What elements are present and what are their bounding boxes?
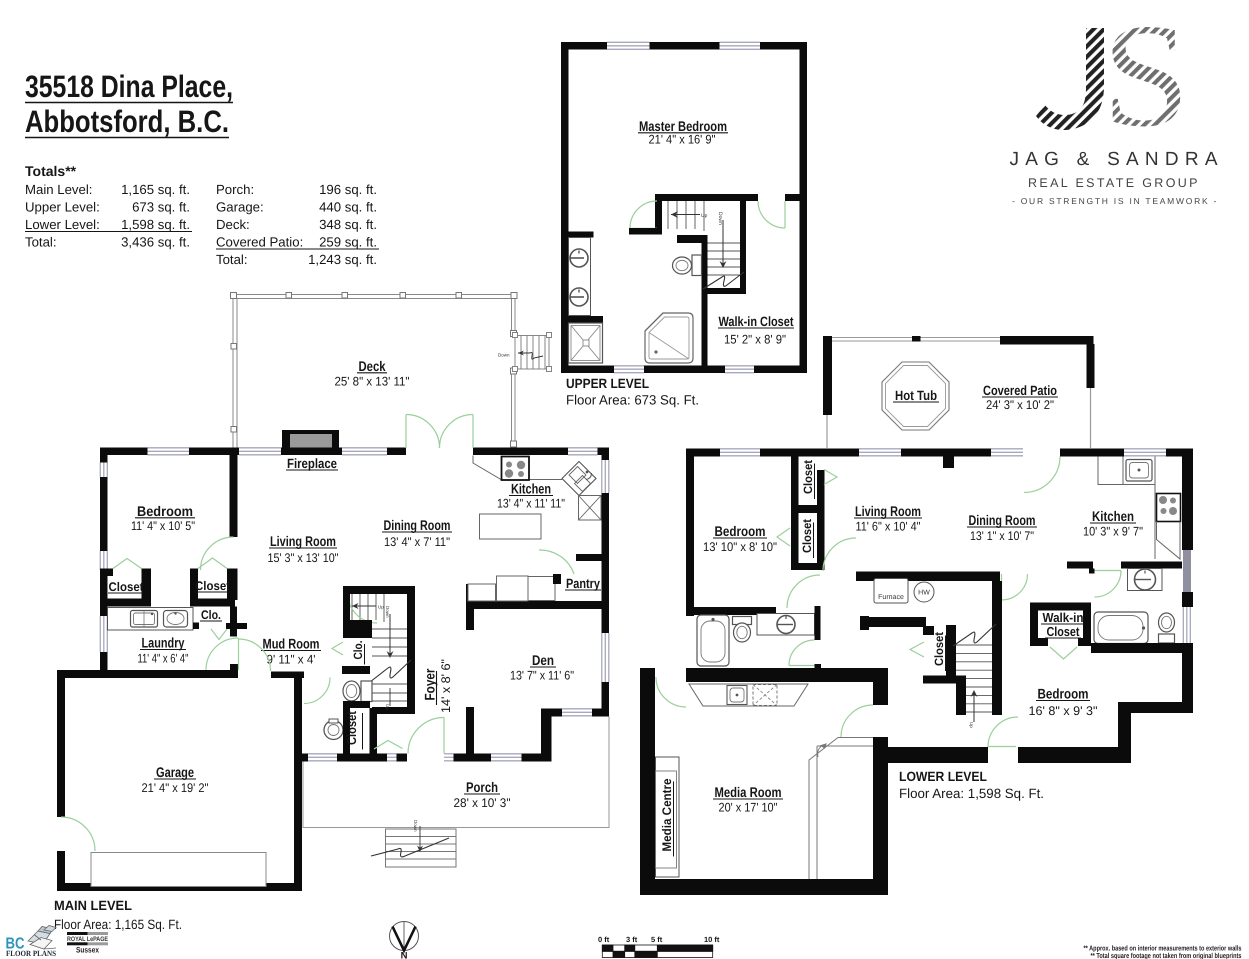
svg-text:Clo.: Clo. (201, 608, 221, 622)
svg-text:REAL ESTATE GROUP: REAL ESTATE GROUP (1028, 176, 1200, 190)
svg-text:10 ft: 10 ft (704, 935, 720, 944)
svg-text:Living Room: Living Room (855, 503, 921, 519)
svg-text:FLOOR PLANS: FLOOR PLANS (6, 949, 56, 958)
svg-text:Media Centre: Media Centre (660, 778, 674, 851)
svg-text:673 sq. ft.: 673 sq. ft. (132, 200, 190, 215)
svg-text:Porch:: Porch: (216, 182, 254, 197)
svg-text:HW: HW (918, 590, 930, 597)
svg-text:Down: Down (385, 606, 390, 618)
svg-text:Deck: Deck (359, 358, 386, 374)
svg-text:Upper Level:: Upper Level: (25, 200, 100, 215)
svg-text:Main Level:: Main Level: (25, 182, 92, 197)
svg-text:11' 6" x 10' 4": 11' 6" x 10' 4" (856, 520, 921, 534)
svg-text:Closet: Closet (932, 632, 946, 666)
svg-text:14' x 8' 6": 14' x 8' 6" (439, 659, 453, 713)
svg-text:Total:: Total: (216, 252, 248, 267)
svg-text:Down: Down (498, 353, 510, 358)
svg-text:24' 3" x 10' 2": 24' 3" x 10' 2" (986, 398, 1054, 412)
svg-text:Bedroom: Bedroom (137, 503, 193, 519)
svg-text:Hot Tub: Hot Tub (895, 388, 937, 403)
svg-text:13' 7" x 11' 6": 13' 7" x 11' 6" (510, 669, 574, 683)
svg-text:Closet: Closet (1047, 624, 1081, 639)
svg-text:Kitchen: Kitchen (511, 481, 551, 497)
svg-text:Floor Area: 1,165 Sq. Ft.: Floor Area: 1,165 Sq. Ft. (54, 917, 182, 932)
svg-text:1,598 sq. ft.: 1,598 sq. ft. (121, 217, 190, 232)
svg-text:1,165 sq. ft.: 1,165 sq. ft. (121, 182, 190, 197)
svg-text:Pantry: Pantry (566, 576, 600, 591)
svg-text:15' 2" x 8' 9": 15' 2" x 8' 9" (724, 333, 786, 347)
svg-text:Bedroom: Bedroom (1038, 686, 1089, 702)
svg-text:11' 4" x 10' 5": 11' 4" x 10' 5" (131, 519, 195, 533)
svg-text:13' 4" x 7' 11": 13' 4" x 7' 11" (384, 535, 450, 549)
svg-text:UPPER LEVEL: UPPER LEVEL (566, 376, 649, 391)
svg-text:13' 10" x 8' 10": 13' 10" x 8' 10" (703, 540, 777, 554)
svg-text:Up: Up (969, 722, 974, 728)
svg-text:Walk-in Closet: Walk-in Closet (719, 314, 794, 329)
svg-text:3,436 sq. ft.: 3,436 sq. ft. (121, 235, 190, 250)
svg-text:Abbotsford, B.C.: Abbotsford, B.C. (25, 104, 229, 139)
svg-text:Floor Area: 673 Sq. Ft.: Floor Area: 673 Sq. Ft. (566, 393, 699, 408)
svg-text:9' 11" x 4': 9' 11" x 4' (267, 653, 316, 667)
svg-text:Totals**: Totals** (25, 163, 77, 179)
svg-text:Dining Room: Dining Room (384, 517, 451, 533)
svg-text:21' 4" x 19' 2": 21' 4" x 19' 2" (142, 781, 209, 795)
svg-text:Clo.: Clo. (351, 641, 365, 660)
svg-text:LOWER LEVEL: LOWER LEVEL (899, 769, 987, 784)
svg-text:Garage: Garage (156, 764, 194, 780)
svg-text:Kitchen: Kitchen (1092, 508, 1134, 524)
svg-text:Lower Level:: Lower Level: (25, 217, 100, 232)
svg-text:Mud Room: Mud Room (263, 636, 320, 652)
svg-text:21' 4" x 16' 9": 21' 4" x 16' 9" (649, 133, 716, 147)
svg-text:- OUR STRENGTH IS IN TEAMWORK: - OUR STRENGTH IS IN TEAMWORK - (1012, 196, 1218, 206)
svg-text:Up: Up (378, 605, 384, 610)
svg-text:Living Room: Living Room (270, 533, 336, 549)
svg-text:28' x 10' 3": 28' x 10' 3" (454, 796, 511, 810)
svg-text:25' 8" x 13' 11": 25' 8" x 13' 11" (335, 375, 410, 389)
svg-text:15' 3" x 13' 10": 15' 3" x 13' 10" (268, 551, 339, 565)
svg-text:Laundry: Laundry (142, 635, 185, 651)
svg-text:10' 3" x 9' 7": 10' 3" x 9' 7" (1083, 525, 1143, 539)
svg-text:Bedroom: Bedroom (715, 523, 766, 539)
svg-text:Walk-in: Walk-in (1043, 610, 1084, 625)
svg-text:Up: Up (701, 213, 708, 219)
svg-text:Covered Patio:: Covered Patio: (216, 235, 303, 250)
svg-text:Closet: Closet (801, 460, 815, 494)
svg-text:Down: Down (413, 820, 418, 832)
svg-text:Closet: Closet (109, 580, 145, 594)
svg-text:Deck:: Deck: (216, 217, 250, 232)
svg-text:Garage:: Garage: (216, 200, 264, 215)
svg-text:Covered Patio: Covered Patio (983, 383, 1057, 398)
svg-text:ROYAL LePAGE: ROYAL LePAGE (67, 936, 109, 943)
svg-text:20' x 17' 10": 20' x 17' 10" (719, 801, 778, 815)
svg-text:Den: Den (532, 652, 554, 668)
svg-text:Up: Up (385, 704, 390, 710)
svg-text:Media Room: Media Room (715, 784, 782, 800)
svg-text:3 ft: 3 ft (626, 935, 638, 944)
svg-text:11' 4" x 6' 4": 11' 4" x 6' 4" (138, 652, 189, 666)
svg-text:Total:: Total: (25, 235, 57, 250)
svg-text:348 sq. ft.: 348 sq. ft. (319, 217, 377, 232)
svg-text:196 sq. ft.: 196 sq. ft. (319, 182, 377, 197)
svg-text:Furnace: Furnace (878, 594, 904, 601)
svg-text:Closet: Closet (800, 519, 814, 553)
svg-text:Closet: Closet (195, 579, 231, 593)
svg-text:Foyer: Foyer (422, 668, 438, 700)
svg-text:13' 1" x 10' 7": 13' 1" x 10' 7" (970, 529, 1034, 543)
svg-text:13' 4" x 11' 11": 13' 4" x 11' 11" (497, 497, 565, 511)
svg-text:Floor Area: 1,598 Sq. Ft.: Floor Area: 1,598 Sq. Ft. (899, 786, 1044, 801)
svg-text:** Total square footage not ta: ** Total square footage not taken from o… (1091, 951, 1242, 959)
svg-text:35518 Dina Place,: 35518 Dina Place, (25, 69, 233, 104)
svg-text:Fireplace: Fireplace (287, 456, 337, 471)
svg-text:16' 8" x 9' 3": 16' 8" x 9' 3" (1029, 704, 1098, 718)
svg-text:440 sq. ft.: 440 sq. ft. (319, 200, 377, 215)
svg-text:Down: Down (717, 212, 723, 225)
svg-text:Closet: Closet (344, 710, 359, 745)
svg-text:Porch: Porch (466, 779, 498, 795)
svg-text:259 sq. ft.: 259 sq. ft. (319, 235, 377, 250)
svg-text:MAIN LEVEL: MAIN LEVEL (54, 898, 132, 913)
svg-text:S: S (1102, 0, 1190, 158)
svg-text:0 ft: 0 ft (598, 935, 610, 944)
svg-text:Dining Room: Dining Room (969, 512, 1036, 528)
svg-text:N: N (401, 951, 408, 959)
svg-text:1,243 sq. ft.: 1,243 sq. ft. (308, 252, 377, 267)
svg-text:5 ft: 5 ft (651, 935, 663, 944)
svg-text:Sussex: Sussex (76, 946, 99, 955)
